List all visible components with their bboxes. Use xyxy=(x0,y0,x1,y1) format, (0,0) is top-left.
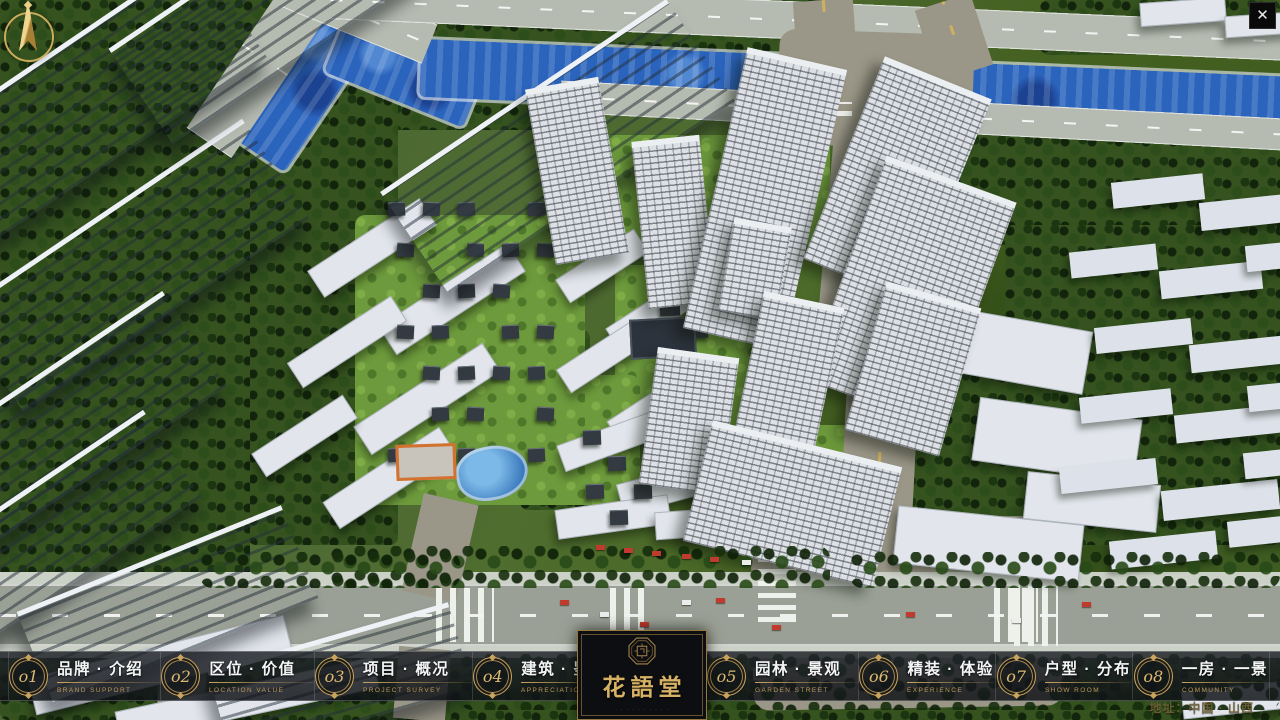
nav-text-01: 品牌 · 介绍 BRAND SUPPORT xyxy=(57,657,160,695)
courtyard-house xyxy=(528,448,546,463)
red-vehicle xyxy=(596,545,605,550)
nav-item-brand[interactable]: o1 品牌 · 介绍 BRAND SUPPORT xyxy=(8,652,161,700)
street-trees xyxy=(200,552,460,588)
courtyard-house xyxy=(423,284,441,299)
courtyard-house xyxy=(537,407,555,422)
street-trees xyxy=(850,552,1280,588)
nav-label-en: SHOW ROOM xyxy=(1045,686,1107,693)
red-vehicle xyxy=(710,557,719,562)
courtyard-house xyxy=(423,366,441,381)
nav-badge-04: o4 xyxy=(473,657,512,696)
courtyard-house xyxy=(458,366,476,381)
courtyard-house xyxy=(493,366,511,381)
nav-label-en: EXPERIENCE xyxy=(907,686,969,693)
nav-label-zh: 园林 · 景观 xyxy=(755,657,858,679)
courtyard-house xyxy=(397,325,415,340)
nav-label-zh: 户型 · 分布 xyxy=(1045,657,1131,679)
courtyard-house xyxy=(586,484,605,500)
neighbor-slab xyxy=(1245,240,1280,272)
courtyard-house xyxy=(397,243,415,258)
white-vehicle xyxy=(682,600,691,605)
courtyard-house xyxy=(528,366,546,381)
red-vehicle xyxy=(772,625,781,630)
courtyard-house xyxy=(502,325,520,340)
nav-item-location[interactable]: o2 区位 · 价值 LOCATION VALUE xyxy=(161,652,315,700)
nav-num-08: o8 xyxy=(1143,667,1163,686)
courtyard-house xyxy=(432,325,450,340)
nav-label-zh: 品牌 · 介绍 xyxy=(57,657,160,679)
nav-group-right: o5 园林 · 景观 GARDEN STREET o6 精装 · 体验 EXPE… xyxy=(706,652,1270,700)
nav-badge-07: o7 xyxy=(997,657,1036,696)
nav-label-en: GARDEN STREET xyxy=(755,686,829,693)
nav-item-floorplan[interactable]: o7 户型 · 分布 SHOW ROOM xyxy=(996,652,1133,700)
nav-num-03: o3 xyxy=(325,667,345,686)
close-button[interactable]: ✕ xyxy=(1249,2,1276,29)
red-vehicle xyxy=(652,551,661,556)
nav-divider-line xyxy=(1182,682,1268,683)
nav-label-en: LOCATION VALUE xyxy=(209,686,284,693)
nav-text-08: 一房 · 一景 COMMUNITY xyxy=(1182,657,1268,695)
nav-badge-02: o2 xyxy=(161,657,200,696)
red-vehicle xyxy=(624,548,633,553)
nav-divider-line xyxy=(1045,682,1131,683)
project-logo[interactable]: 花語堂 · · · · · · · · · · xyxy=(577,630,707,720)
nav-num-01: o1 xyxy=(19,667,39,686)
nav-text-02: 区位 · 价值 LOCATION VALUE xyxy=(209,657,314,695)
nav-badge-08: o8 xyxy=(1134,657,1173,696)
red-vehicle xyxy=(906,612,915,617)
nav-item-project[interactable]: o3 项目 · 概况 PROJECT SURVEY xyxy=(315,652,473,700)
nav-label-en: PROJECT SURVEY xyxy=(363,686,442,693)
courtyard-house xyxy=(432,407,450,422)
nav-badge-06: o6 xyxy=(859,657,898,696)
logo-caption: · · · · · · · · · · xyxy=(615,706,669,712)
nav-num-05: o5 xyxy=(717,667,737,686)
nav-label-zh: 一房 · 一景 xyxy=(1182,657,1268,679)
red-vehicle xyxy=(640,622,649,627)
nav-num-06: o6 xyxy=(869,667,889,686)
nav-divider-line xyxy=(755,682,858,683)
crosswalk xyxy=(1014,586,1058,646)
nav-text-03: 项目 · 概况 PROJECT SURVEY xyxy=(363,657,472,695)
seal-emblem-icon xyxy=(627,636,657,666)
courtyard-house xyxy=(608,456,627,472)
nav-item-interior[interactable]: o6 精装 · 体验 EXPERIENCE xyxy=(859,652,996,700)
white-vehicle xyxy=(1012,618,1021,623)
nav-item-views[interactable]: o8 一房 · 一景 COMMUNITY xyxy=(1133,652,1270,700)
red-vehicle xyxy=(682,554,691,559)
masterplan-render xyxy=(0,0,1280,720)
nav-group-left: o1 品牌 · 介绍 BRAND SUPPORT o2 区位 · 价值 LOCA… xyxy=(8,652,576,700)
nav-num-02: o2 xyxy=(171,667,191,686)
nav-text-06: 精装 · 体验 EXPERIENCE xyxy=(907,657,993,695)
courtyard-house xyxy=(493,284,511,299)
nav-divider-line xyxy=(57,682,160,683)
nav-label-zh: 区位 · 价值 xyxy=(209,657,314,679)
courtyard-house xyxy=(583,430,602,446)
logo-title: 花語堂 xyxy=(598,668,687,702)
white-vehicle xyxy=(600,612,609,617)
nav-label-zh: 项目 · 概况 xyxy=(363,657,472,679)
address-text: 地址：中国 · 山西 xyxy=(1149,699,1254,716)
courtyard-house xyxy=(610,510,629,526)
orange-roof-building xyxy=(395,443,456,481)
nav-divider-line xyxy=(209,682,314,683)
nav-text-05: 园林 · 景观 GARDEN STREET xyxy=(755,657,858,695)
courtyard-house xyxy=(537,325,555,340)
courtyard-house xyxy=(467,407,485,422)
nav-text-07: 户型 · 分布 SHOW ROOM xyxy=(1045,657,1131,695)
nav-badge-01: o1 xyxy=(9,657,48,696)
nav-label-en: BRAND SUPPORT xyxy=(57,686,131,693)
red-vehicle xyxy=(560,600,569,605)
nav-badge-05: o5 xyxy=(707,657,746,696)
nav-badge-03: o3 xyxy=(315,657,354,696)
nav-item-garden[interactable]: o5 园林 · 景观 GARDEN STREET xyxy=(706,652,859,700)
white-vehicle xyxy=(742,560,751,565)
nav-label-en: COMMUNITY xyxy=(1182,686,1244,693)
courtyard-house xyxy=(634,484,653,500)
nav-label-zh: 精装 · 体验 xyxy=(907,657,993,679)
nav-num-04: o4 xyxy=(483,667,503,686)
nav-num-07: o7 xyxy=(1006,667,1026,686)
red-vehicle xyxy=(1082,602,1091,607)
nav-divider-line xyxy=(363,682,472,683)
presentation-window: ✕ o1 品牌 · 介绍 BRAND SUPPORT o2 区位 · 价值 LO… xyxy=(0,0,1280,720)
red-vehicle xyxy=(716,598,725,603)
nav-divider-line xyxy=(907,682,993,683)
